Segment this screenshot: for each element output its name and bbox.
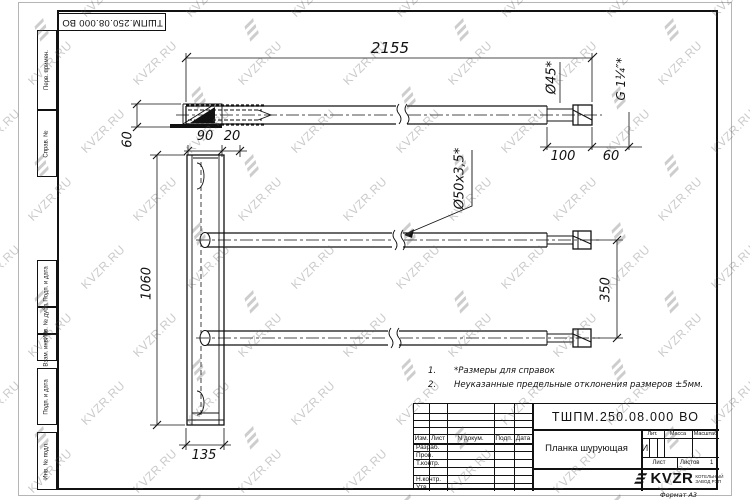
note-2-text: Неуказанные предельные отклонения размер… <box>454 380 703 390</box>
dim-length-100: 100 <box>543 149 583 164</box>
tb-row-razrab: Разраб. <box>416 443 460 451</box>
tb-row-tkontr: Т.контр. <box>416 459 460 467</box>
note-1: 1. *Размеры для справок <box>428 366 703 376</box>
kvzr-logo-subtext: КОТЕЛЬНЫЙ ЗАВОД РЭП <box>695 474 723 484</box>
tb-sheet-label: Лист <box>641 457 677 468</box>
tb-sheets-label: Листов <box>680 457 708 468</box>
tb-row-nkontr: Н.контр. <box>416 475 460 483</box>
note-1-number: 1. <box>428 366 454 376</box>
tb-col-list: Лист <box>429 434 447 443</box>
tb-col-podp: Подп. <box>494 434 514 443</box>
note-1-text: *Размеры для справок <box>454 366 555 376</box>
dim-width-20: 20 <box>214 129 250 144</box>
drawing-notes: 1. *Размеры для справок 2. Неуказанные п… <box>428 366 703 394</box>
dim-diameter-45: Ø45* <box>545 50 560 106</box>
dim-height-1060: 1060 <box>140 261 155 307</box>
tb-col-izm: Изм. <box>414 434 429 443</box>
note-2: 2. Неуказанные предельные отклонения раз… <box>428 380 703 390</box>
tb-mass-label: Масса <box>664 429 692 438</box>
title-block: Изм. Лист N докум. Подп. Дата Разраб. Пр… <box>413 403 718 490</box>
dim-overall-length: 2155 <box>355 39 425 57</box>
dim-tube-spec: Ø50х3,5* <box>453 142 468 216</box>
tb-row-utv: Утв. <box>416 483 460 491</box>
top-view <box>170 102 602 128</box>
tb-row-prov: Пров. <box>416 451 460 459</box>
tb-doc-number: ТШПМ.250.08.000 ВО <box>532 404 719 429</box>
tb-lit-value: И <box>641 438 649 457</box>
tb-col-data: Дата <box>514 434 532 443</box>
dim-width-135: 135 <box>182 448 226 463</box>
tb-col-ndocum: N докум. <box>447 434 494 443</box>
dim-length-60: 60 <box>593 149 629 164</box>
kvzr-logo-text: KVZR <box>650 470 693 487</box>
kvzr-logo: KVZR КОТЕЛЬНЫЙ ЗАВОД РЭП <box>641 468 717 489</box>
note-2-number: 2. <box>428 380 454 390</box>
tb-scale-label: Масштаб <box>692 429 719 438</box>
dim-spacing-350: 350 <box>599 270 614 310</box>
dim-height-60: 60 <box>121 124 136 156</box>
kvzr-bars-icon <box>634 472 648 485</box>
tb-lit-label: Лит. <box>641 429 664 438</box>
dim-thread-g114: G 1¼″* <box>614 47 628 111</box>
format-label: Формат А3 <box>660 491 697 499</box>
tb-sheets-value: 1 <box>710 457 718 468</box>
tb-part-name: Планка шурующая <box>532 429 641 468</box>
drawing-sheet: Перв. примен. Справ. № Подп. и дата Инв.… <box>0 0 750 500</box>
